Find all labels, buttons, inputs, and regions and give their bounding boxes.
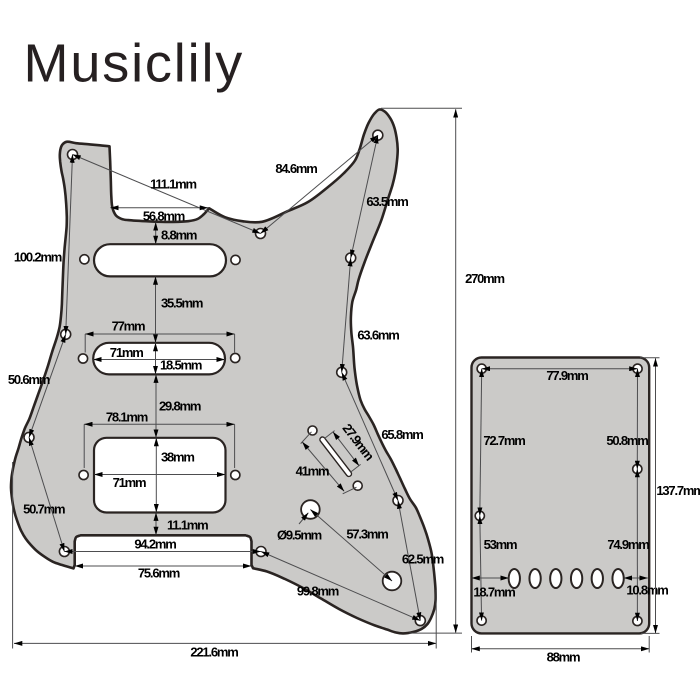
svg-text:53mm: 53mm <box>484 537 517 552</box>
svg-text:71mm: 71mm <box>110 345 143 360</box>
svg-text:10.8mm: 10.8mm <box>626 583 668 598</box>
svg-text:111.1mm: 111.1mm <box>150 177 196 192</box>
svg-text:18.7mm: 18.7mm <box>473 585 515 600</box>
svg-text:35.5mm: 35.5mm <box>161 296 203 311</box>
svg-text:74.9mm: 74.9mm <box>607 537 649 552</box>
svg-text:94.2mm: 94.2mm <box>134 537 176 552</box>
svg-text:11.1mm: 11.1mm <box>167 518 208 533</box>
svg-text:50.7mm: 50.7mm <box>23 502 65 517</box>
svg-text:270mm: 270mm <box>465 271 504 286</box>
svg-text:41mm: 41mm <box>296 464 329 479</box>
svg-text:50.6mm: 50.6mm <box>8 372 50 387</box>
svg-text:99.8mm: 99.8mm <box>297 584 339 599</box>
svg-text:56.8mm: 56.8mm <box>143 209 185 224</box>
svg-text:18.5mm: 18.5mm <box>160 358 202 373</box>
svg-text:77mm: 77mm <box>112 319 145 334</box>
svg-text:84.6mm: 84.6mm <box>275 161 317 176</box>
svg-text:38mm: 38mm <box>161 450 194 465</box>
svg-text:221.6mm: 221.6mm <box>190 645 238 660</box>
svg-text:77.9mm: 77.9mm <box>546 368 588 383</box>
svg-text:65.8mm: 65.8mm <box>381 427 423 442</box>
svg-text:63.6mm: 63.6mm <box>357 328 399 343</box>
svg-text:63.5mm: 63.5mm <box>366 194 408 209</box>
svg-text:8.8mm: 8.8mm <box>161 227 197 242</box>
svg-text:57.3mm: 57.3mm <box>346 527 388 542</box>
svg-text:29.8mm: 29.8mm <box>159 399 201 414</box>
svg-text:Musiclily: Musiclily <box>24 33 245 93</box>
svg-text:Ø9.5mm: Ø9.5mm <box>277 528 322 543</box>
svg-text:72.7mm: 72.7mm <box>483 433 525 448</box>
svg-text:78.1mm: 78.1mm <box>106 410 148 425</box>
svg-text:50.8mm: 50.8mm <box>606 433 648 448</box>
svg-text:62.5mm: 62.5mm <box>402 552 444 567</box>
svg-text:88mm: 88mm <box>547 650 580 665</box>
svg-text:75.6mm: 75.6mm <box>138 566 180 581</box>
svg-text:71mm: 71mm <box>113 475 146 490</box>
svg-text:137.7mm: 137.7mm <box>656 483 700 498</box>
svg-text:100.2mm: 100.2mm <box>14 250 62 265</box>
